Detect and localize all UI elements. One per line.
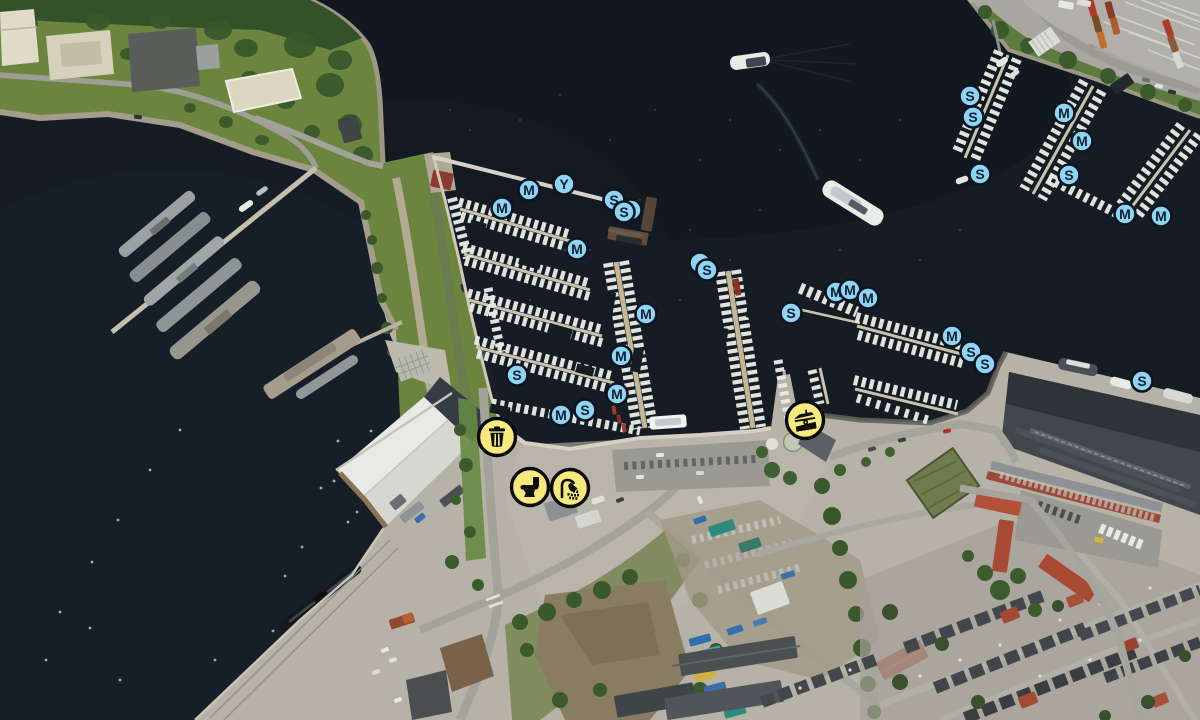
svg-text:S: S <box>1064 167 1073 183</box>
svg-text:M: M <box>555 407 567 423</box>
svg-text:S: S <box>980 356 989 372</box>
svg-text:M: M <box>611 386 623 402</box>
svg-text:M: M <box>1058 105 1070 121</box>
svg-text:S: S <box>512 367 521 383</box>
svg-text:S: S <box>975 166 984 182</box>
svg-text:S: S <box>965 88 974 104</box>
svg-text:M: M <box>844 282 856 298</box>
svg-text:Y: Y <box>559 176 569 192</box>
svg-text:M: M <box>1155 208 1167 224</box>
svg-text:M: M <box>523 182 535 198</box>
svg-text:M: M <box>1076 133 1088 149</box>
svg-text:M: M <box>615 348 627 364</box>
svg-text:S: S <box>702 262 711 278</box>
svg-text:S: S <box>619 204 628 220</box>
svg-text:M: M <box>946 328 958 344</box>
svg-text:S: S <box>966 344 975 360</box>
svg-text:M: M <box>1119 206 1131 222</box>
svg-text:M: M <box>640 306 652 322</box>
svg-text:S: S <box>580 402 589 418</box>
svg-text:S: S <box>968 109 977 125</box>
svg-text:M: M <box>862 290 874 306</box>
svg-text:M: M <box>571 241 583 257</box>
svg-text:S: S <box>1137 373 1146 389</box>
svg-text:M: M <box>496 200 508 216</box>
svg-text:S: S <box>786 305 795 321</box>
